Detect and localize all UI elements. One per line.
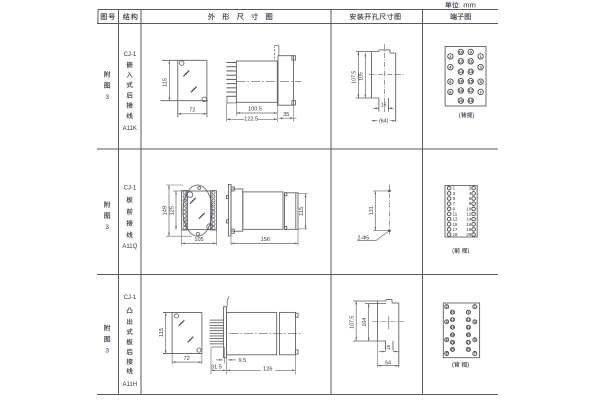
svg-text:3: 3 bbox=[105, 347, 109, 354]
svg-text:15: 15 bbox=[467, 333, 471, 337]
svg-text:A11H: A11H bbox=[123, 382, 138, 388]
svg-text:14: 14 bbox=[451, 326, 455, 330]
svg-text:3: 3 bbox=[105, 224, 109, 231]
svg-text:35: 35 bbox=[283, 112, 289, 118]
svg-text:6: 6 bbox=[446, 338, 448, 342]
svg-text:16: 16 bbox=[459, 78, 464, 83]
svg-text:20: 20 bbox=[466, 232, 471, 237]
svg-text:): ) bbox=[467, 362, 469, 369]
svg-text:2-Φ5: 2-Φ5 bbox=[358, 236, 370, 242]
svg-text:12: 12 bbox=[451, 318, 455, 322]
svg-text:19: 19 bbox=[467, 348, 471, 352]
svg-text:A11Q: A11Q bbox=[122, 244, 137, 250]
svg-text:3: 3 bbox=[474, 320, 476, 324]
svg-text:10: 10 bbox=[451, 310, 455, 314]
svg-text:mm: mm bbox=[463, 0, 476, 9]
svg-text:20: 20 bbox=[459, 98, 464, 103]
svg-text:12: 12 bbox=[459, 59, 464, 64]
svg-text:20: 20 bbox=[451, 348, 455, 352]
svg-text:9.5: 9.5 bbox=[239, 358, 247, 364]
svg-text:31.5: 31.5 bbox=[211, 364, 222, 370]
svg-text:149: 149 bbox=[162, 206, 168, 215]
svg-text:11: 11 bbox=[467, 318, 471, 322]
svg-text:10: 10 bbox=[459, 49, 464, 54]
svg-text:100.5: 100.5 bbox=[248, 107, 262, 113]
svg-text:16: 16 bbox=[451, 333, 455, 337]
svg-text:9: 9 bbox=[467, 310, 469, 314]
svg-text:8: 8 bbox=[446, 352, 448, 356]
svg-text:17: 17 bbox=[468, 88, 473, 93]
svg-text:5: 5 bbox=[474, 338, 476, 342]
svg-text:115: 115 bbox=[299, 207, 305, 216]
svg-text:13: 13 bbox=[467, 326, 471, 330]
svg-text:19: 19 bbox=[468, 98, 473, 103]
svg-text:105: 105 bbox=[194, 237, 203, 243]
svg-text:115: 115 bbox=[163, 78, 169, 87]
svg-text:A11K: A11K bbox=[123, 126, 137, 132]
svg-text:126: 126 bbox=[263, 367, 272, 373]
svg-text:18: 18 bbox=[459, 88, 464, 93]
svg-text:107.5: 107.5 bbox=[350, 316, 356, 329]
svg-text:72: 72 bbox=[183, 356, 189, 362]
svg-text:CJ-1: CJ-1 bbox=[124, 52, 137, 58]
svg-text:): ) bbox=[472, 112, 474, 119]
svg-text:(: ( bbox=[452, 362, 454, 369]
svg-text:72: 72 bbox=[189, 108, 195, 114]
svg-text:125: 125 bbox=[169, 206, 175, 215]
svg-text:3: 3 bbox=[105, 94, 109, 101]
svg-text:(: ( bbox=[459, 112, 461, 119]
svg-text:115: 115 bbox=[159, 328, 165, 337]
svg-text:17: 17 bbox=[467, 341, 471, 345]
svg-text:CJ-1: CJ-1 bbox=[124, 295, 137, 301]
svg-text:13: 13 bbox=[468, 69, 473, 74]
svg-text:107.5: 107.5 bbox=[352, 71, 358, 84]
svg-text:14: 14 bbox=[459, 69, 464, 74]
svg-text:18: 18 bbox=[451, 341, 455, 345]
svg-text:104: 104 bbox=[362, 318, 368, 327]
svg-text:64: 64 bbox=[385, 360, 391, 366]
svg-text:(64): (64) bbox=[379, 119, 388, 125]
svg-text:2: 2 bbox=[446, 305, 448, 309]
svg-text:105: 105 bbox=[359, 72, 365, 81]
svg-text:15: 15 bbox=[468, 78, 473, 83]
svg-text:16: 16 bbox=[381, 103, 387, 109]
svg-text::: : bbox=[459, 2, 461, 9]
svg-text:122.5: 122.5 bbox=[244, 117, 258, 123]
svg-text:16: 16 bbox=[386, 345, 391, 351]
svg-text:4: 4 bbox=[446, 320, 448, 324]
svg-text:156: 156 bbox=[261, 237, 270, 243]
svg-text:CJ-1: CJ-1 bbox=[124, 186, 137, 192]
svg-text:19: 19 bbox=[453, 232, 458, 237]
svg-text:7: 7 bbox=[474, 352, 476, 356]
svg-text:131: 131 bbox=[369, 206, 375, 215]
svg-text:): ) bbox=[467, 248, 469, 255]
svg-text:(: ( bbox=[452, 248, 454, 255]
svg-text:1: 1 bbox=[474, 305, 476, 309]
